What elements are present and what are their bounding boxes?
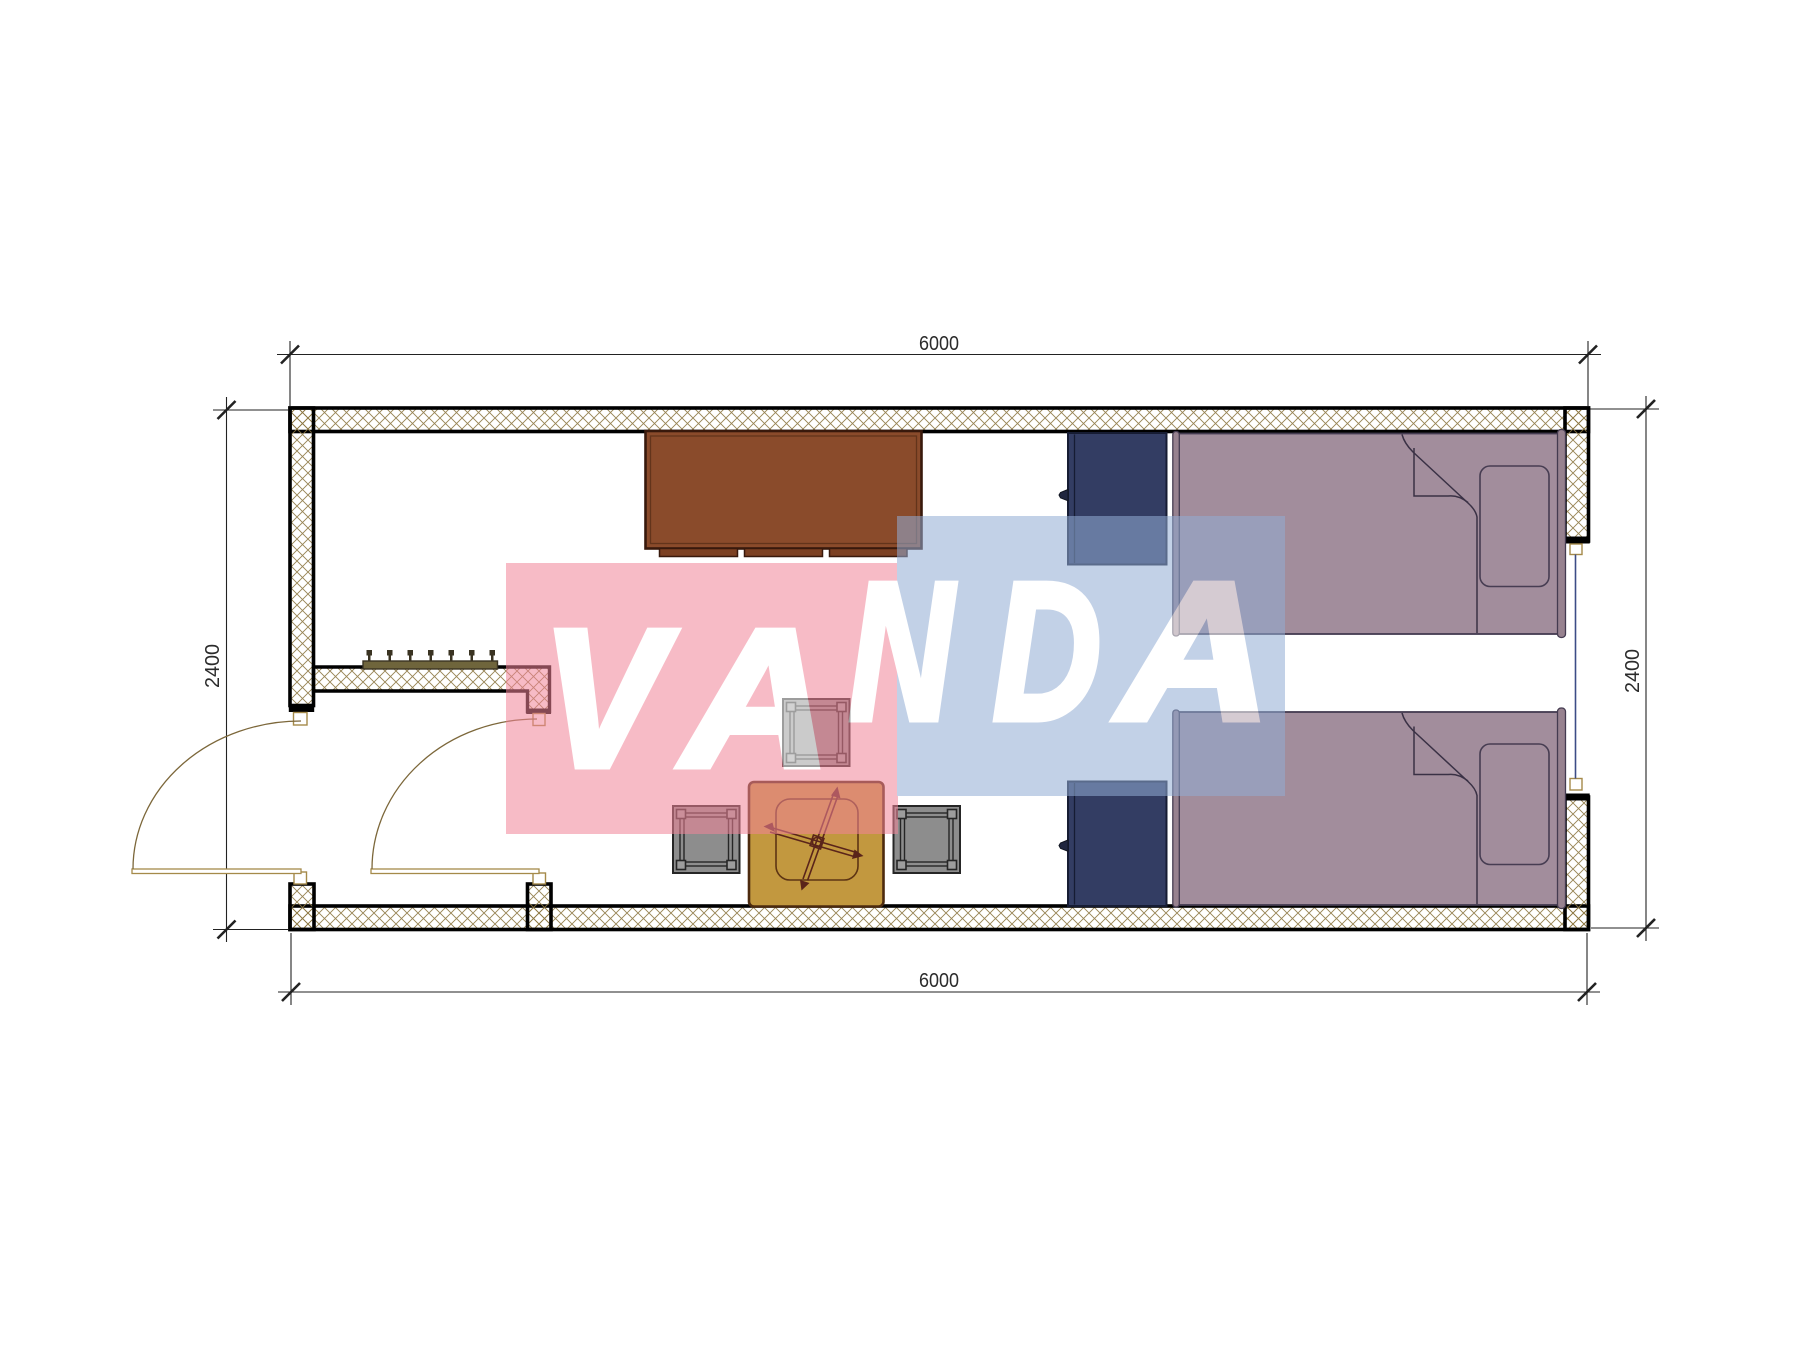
svg-text:N: N [849,542,956,761]
svg-text:V: V [542,589,677,808]
svg-text:A: A [1114,542,1271,761]
svg-text:6000: 6000 [919,970,959,992]
svg-text:2400: 2400 [202,644,224,688]
svg-text:6000: 6000 [919,333,959,355]
svg-text:A: A [678,589,831,808]
svg-text:2400: 2400 [1622,649,1644,693]
svg-text:D: D [993,542,1101,761]
